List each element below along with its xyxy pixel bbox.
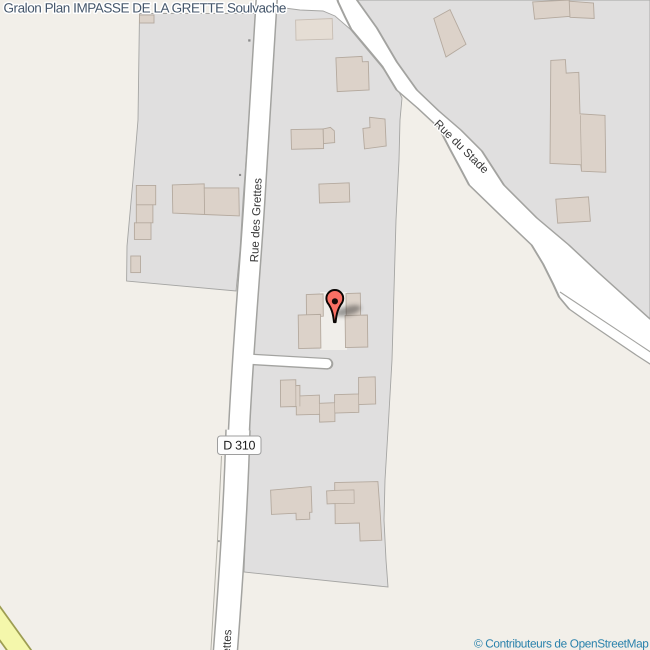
svg-text:D 310: D 310 bbox=[223, 439, 255, 453]
svg-text:Gralon Plan IMPASSE DE LA GRET: Gralon Plan IMPASSE DE LA GRETTE Soulvac… bbox=[4, 1, 286, 16]
svg-text:© Contributeurs de OpenStreetM: © Contributeurs de OpenStreetMap bbox=[474, 636, 649, 650]
